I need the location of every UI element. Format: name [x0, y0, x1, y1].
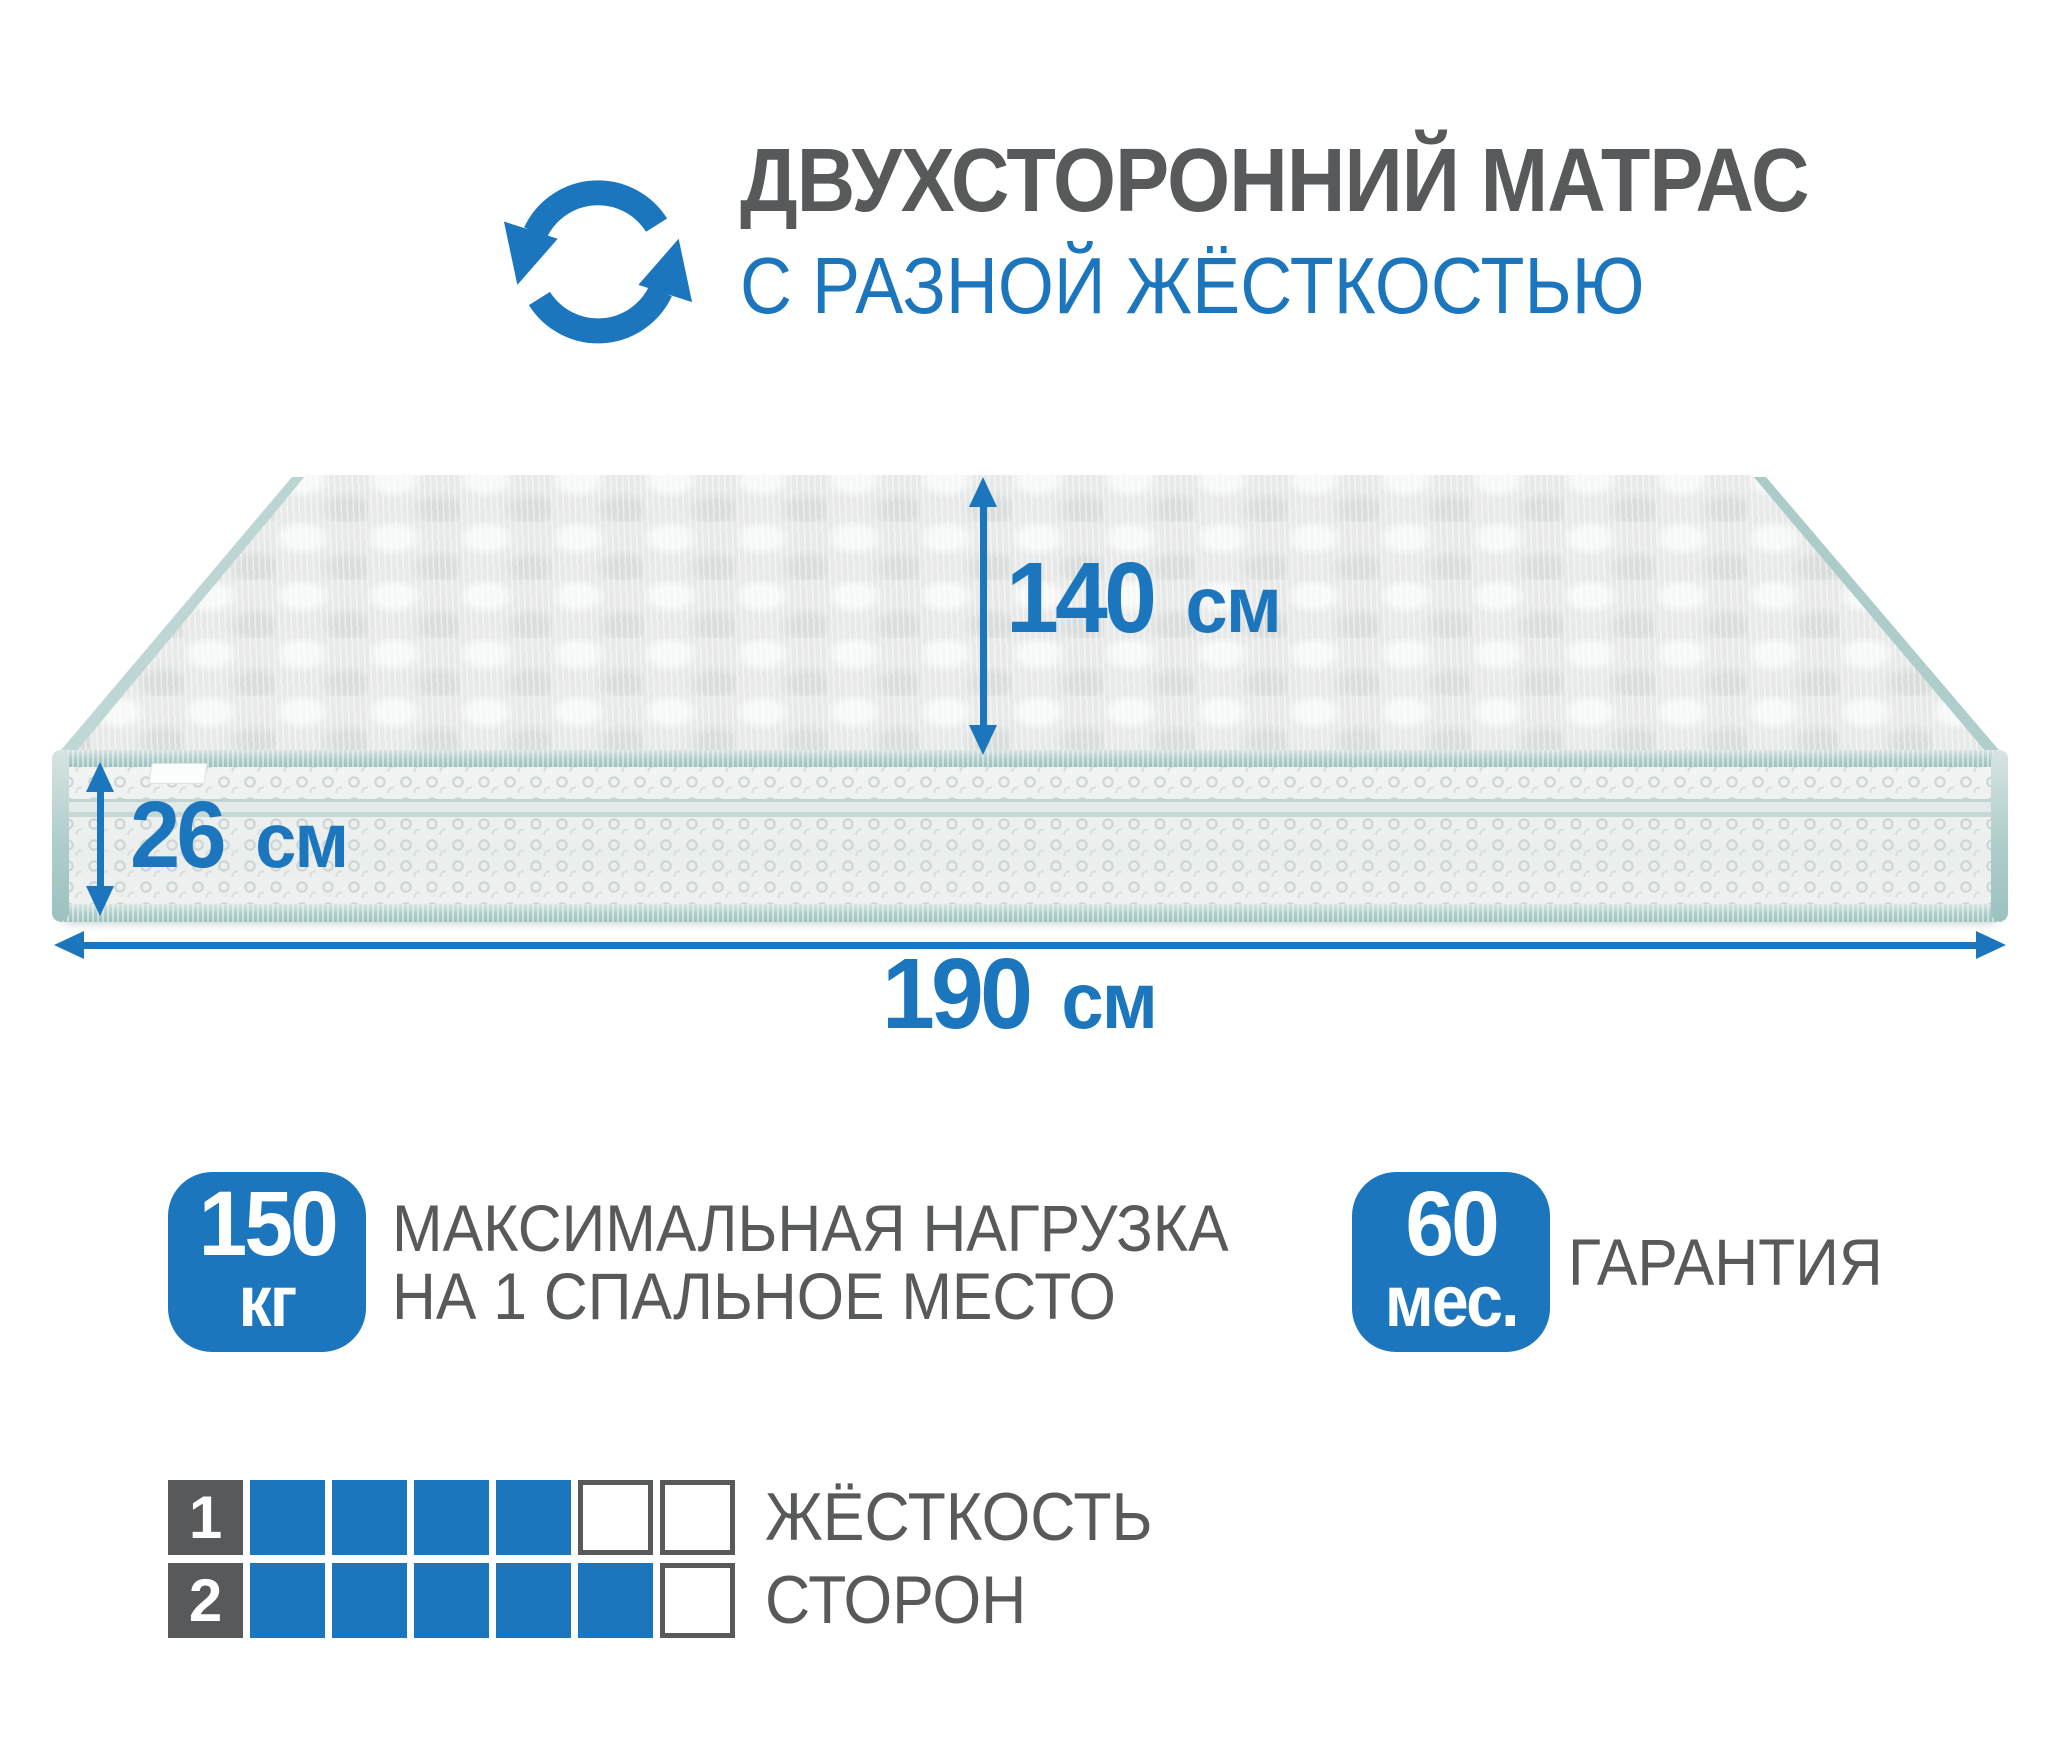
warranty-value: 60	[1405, 1182, 1497, 1267]
firmness-row-side2	[250, 1563, 735, 1638]
warranty-unit: мес.	[1385, 1266, 1518, 1338]
mattress-piping-left	[52, 751, 69, 921]
warranty-label: ГАРАНТИЯ	[1568, 1228, 1883, 1296]
max-load-label-line2: НА 1 СПАЛЬНОЕ МЕСТО	[392, 1262, 1229, 1330]
firmness-row-side1	[250, 1480, 735, 1555]
firmness-cell-filled	[496, 1480, 571, 1555]
firmness-cell-filled	[250, 1480, 325, 1555]
firmness-cell-filled	[578, 1563, 653, 1638]
rotate-arrows-icon	[500, 162, 696, 354]
mattress-front-side	[56, 751, 2004, 921]
height-unit: см	[255, 801, 347, 879]
max-load-label-line1: МАКСИМАЛЬНАЯ НАГРУЗКА	[392, 1194, 1229, 1262]
firmness-cell-filled	[496, 1563, 571, 1638]
firmness-cell-empty	[660, 1480, 735, 1555]
width-unit: см	[1185, 565, 1280, 645]
width-dimension-label: 140 см	[1006, 548, 1280, 648]
mattress-piping-top	[52, 750, 2008, 767]
length-value: 190	[882, 944, 1029, 1044]
width-dimension-arrow	[969, 477, 997, 755]
firmness-cell-filled	[414, 1563, 489, 1638]
max-load-unit: кг	[238, 1266, 295, 1338]
max-load-label: МАКСИМАЛЬНАЯ НАГРУЗКА НА 1 СПАЛЬНОЕ МЕСТ…	[392, 1194, 1229, 1330]
firmness-cell-empty	[660, 1563, 735, 1638]
mattress-middle-band	[60, 799, 2000, 817]
mattress-label-tag	[149, 763, 208, 784]
firmness-cell-filled	[414, 1480, 489, 1555]
mattress-piping-bottom	[52, 904, 2008, 922]
firmness-title-line2: СТОРОН	[765, 1563, 1026, 1638]
firmness-side1-box: 1	[168, 1480, 243, 1555]
width-value: 140	[1006, 548, 1153, 648]
page-subtitle: С РАЗНОЙ ЖЁСТКОСТЬЮ	[740, 246, 1645, 326]
firmness-side2-box: 2	[168, 1563, 243, 1638]
mattress-piping-right	[1991, 751, 2008, 921]
length-unit: см	[1061, 961, 1156, 1041]
firmness-cell-filled	[332, 1480, 407, 1555]
height-dimension-label: 26 см	[130, 788, 347, 883]
firmness-cell-filled	[250, 1563, 325, 1638]
length-dimension-label: 190 см	[882, 944, 1156, 1044]
max-load-value: 150	[198, 1182, 335, 1267]
mattress-infographic: ДВУХСТОРОННИЙ МАТРАС С РАЗНОЙ ЖЁСТКОСТЬЮ…	[0, 0, 2048, 1757]
firmness-title-line1: ЖЁСТКОСТЬ	[765, 1480, 1153, 1555]
height-dimension-arrow	[86, 762, 114, 916]
page-title: ДВУХСТОРОННИЙ МАТРАС	[740, 136, 1809, 226]
firmness-cell-empty	[578, 1480, 653, 1555]
warranty-badge: 60 мес.	[1352, 1172, 1550, 1352]
height-value: 26	[130, 788, 223, 883]
firmness-cell-filled	[332, 1563, 407, 1638]
max-load-badge: 150 кг	[168, 1172, 366, 1352]
